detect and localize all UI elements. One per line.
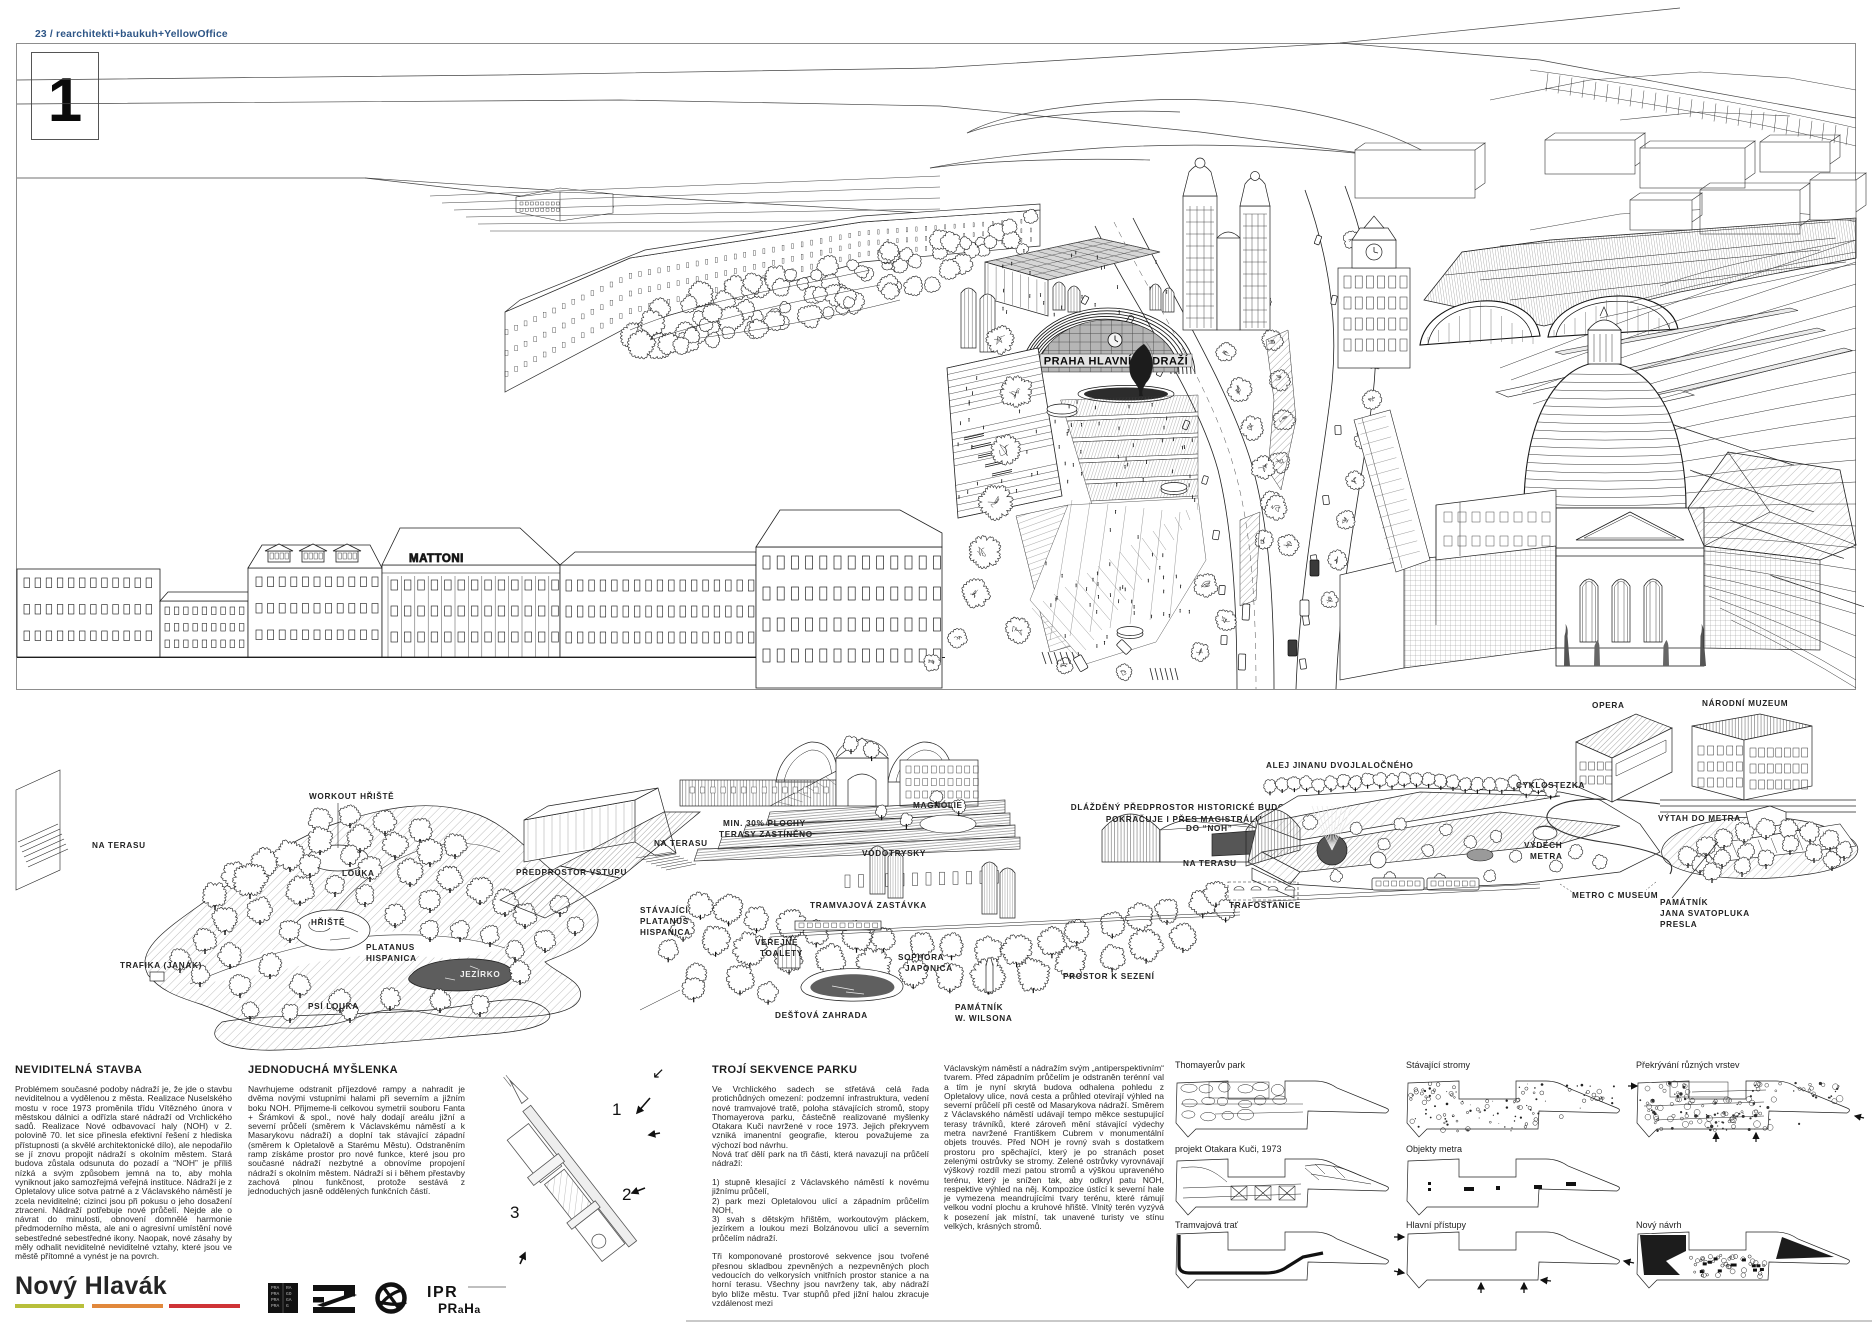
svg-text:NA TERASU: NA TERASU bbox=[1183, 859, 1237, 868]
svg-text:PRA: PRA bbox=[271, 1303, 280, 1309]
svg-text:DEŠŤOVÁ ZAHRADA: DEŠŤOVÁ ZAHRADA bbox=[775, 1009, 868, 1020]
svg-text:JAPONICA: JAPONICA bbox=[905, 964, 953, 973]
svg-text:SOPHORA: SOPHORA bbox=[898, 953, 944, 962]
svg-text:TRAFIKA (JANÁK): TRAFIKA (JANÁK) bbox=[120, 960, 202, 970]
svg-text:VEŘEJNÉ: VEŘEJNÉ bbox=[755, 936, 798, 947]
svg-text:NA TERASU: NA TERASU bbox=[92, 841, 146, 850]
svg-text:LOUKA: LOUKA bbox=[342, 869, 375, 878]
svg-text:GO: GO bbox=[286, 1291, 292, 1297]
svg-text:METRA: METRA bbox=[1530, 852, 1563, 861]
svg-text:1: 1 bbox=[612, 1100, 621, 1119]
svg-text:METRO C MUSEUM: METRO C MUSEUM bbox=[1572, 891, 1658, 900]
svg-text:1: 1 bbox=[48, 66, 82, 135]
svg-text:GA: GA bbox=[286, 1297, 292, 1303]
svg-text:PRA: PRA bbox=[271, 1285, 280, 1291]
svg-text:HISPANICA: HISPANICA bbox=[640, 928, 691, 937]
svg-text:2: 2 bbox=[622, 1185, 631, 1204]
svg-text:TRAFOSTANICE: TRAFOSTANICE bbox=[1229, 901, 1301, 910]
svg-text:ALEJ JINANU DVOJLALOČNÉHO: ALEJ JINANU DVOJLALOČNÉHO bbox=[1266, 759, 1414, 770]
svg-text:HŘIŠTĚ: HŘIŠTĚ bbox=[311, 916, 345, 927]
svg-text:MIN. 30% PLOCHY: MIN. 30% PLOCHY bbox=[723, 819, 806, 828]
svg-text:TRAMVAJOVÁ ZASTÁVKA: TRAMVAJOVÁ ZASTÁVKA bbox=[810, 900, 927, 910]
svg-text:PAMÁTNÍK: PAMÁTNÍK bbox=[1660, 897, 1708, 907]
svg-text:PRA: PRA bbox=[271, 1297, 280, 1303]
svg-text:W. WILSONA: W. WILSONA bbox=[955, 1014, 1012, 1023]
svg-text:CYKLOSTEZKA: CYKLOSTEZKA bbox=[1516, 781, 1585, 790]
svg-text:PLATANUS: PLATANUS bbox=[366, 943, 415, 952]
svg-text:PRaHa: PRaHa bbox=[438, 1301, 481, 1316]
svg-text:JANA SVATOPLUKA: JANA SVATOPLUKA bbox=[1660, 909, 1750, 918]
svg-text:PRESLA: PRESLA bbox=[1660, 920, 1697, 929]
svg-text:VÝDECH: VÝDECH bbox=[1524, 839, 1562, 850]
svg-text:IPR: IPR bbox=[427, 1284, 458, 1301]
svg-text:VODOTRYSKY: VODOTRYSKY bbox=[862, 849, 926, 858]
svg-text:PLATANUS: PLATANUS bbox=[640, 917, 689, 926]
svg-text:G: G bbox=[286, 1303, 289, 1309]
svg-text:VÝTAH DO METRA: VÝTAH DO METRA bbox=[1658, 812, 1741, 823]
svg-text:JEZÍRKO: JEZÍRKO bbox=[460, 969, 500, 979]
svg-text:WORKOUT HŘIŠTĚ: WORKOUT HŘIŠTĚ bbox=[309, 790, 394, 801]
svg-text:PRA: PRA bbox=[271, 1291, 280, 1297]
svg-text:PAMÁTNÍK: PAMÁTNÍK bbox=[955, 1002, 1003, 1012]
svg-text:TERASY ZASTÍNĚNO: TERASY ZASTÍNĚNO bbox=[719, 828, 813, 839]
svg-text:3: 3 bbox=[510, 1203, 519, 1222]
svg-text:TOALETY: TOALETY bbox=[760, 949, 803, 958]
svg-text:POKRAČUJE I PŘES MAGISTRÁLU: POKRAČUJE I PŘES MAGISTRÁLU bbox=[1106, 813, 1262, 824]
svg-text:MAGNÓLIE: MAGNÓLIE bbox=[913, 799, 963, 810]
svg-text:MATTONI: MATTONI bbox=[409, 553, 464, 565]
svg-text:OPERA: OPERA bbox=[1592, 701, 1625, 710]
svg-text:DLÁŽDĚNÝ PŘEDPROSTOR HISTORICK: DLÁŽDĚNÝ PŘEDPROSTOR HISTORICKÉ BUDOVY bbox=[1071, 801, 1297, 812]
svg-text:STÁVAJÍCÍ: STÁVAJÍCÍ bbox=[640, 905, 688, 915]
svg-text:DO “NOH”: DO “NOH” bbox=[1186, 824, 1233, 833]
svg-text:PROSTOR K SEZENÍ: PROSTOR K SEZENÍ bbox=[1063, 971, 1155, 981]
svg-text:HISPANICA: HISPANICA bbox=[366, 954, 417, 963]
svg-text:NÁRODNÍ MUZEUM: NÁRODNÍ MUZEUM bbox=[1702, 698, 1788, 708]
svg-text:RA: RA bbox=[286, 1285, 292, 1291]
svg-text:PSÍ LOUKA: PSÍ LOUKA bbox=[308, 1001, 359, 1011]
svg-text:PRAHA HLAVNÍ NÁDRAŽÍ: PRAHA HLAVNÍ NÁDRAŽÍ bbox=[1044, 355, 1189, 368]
